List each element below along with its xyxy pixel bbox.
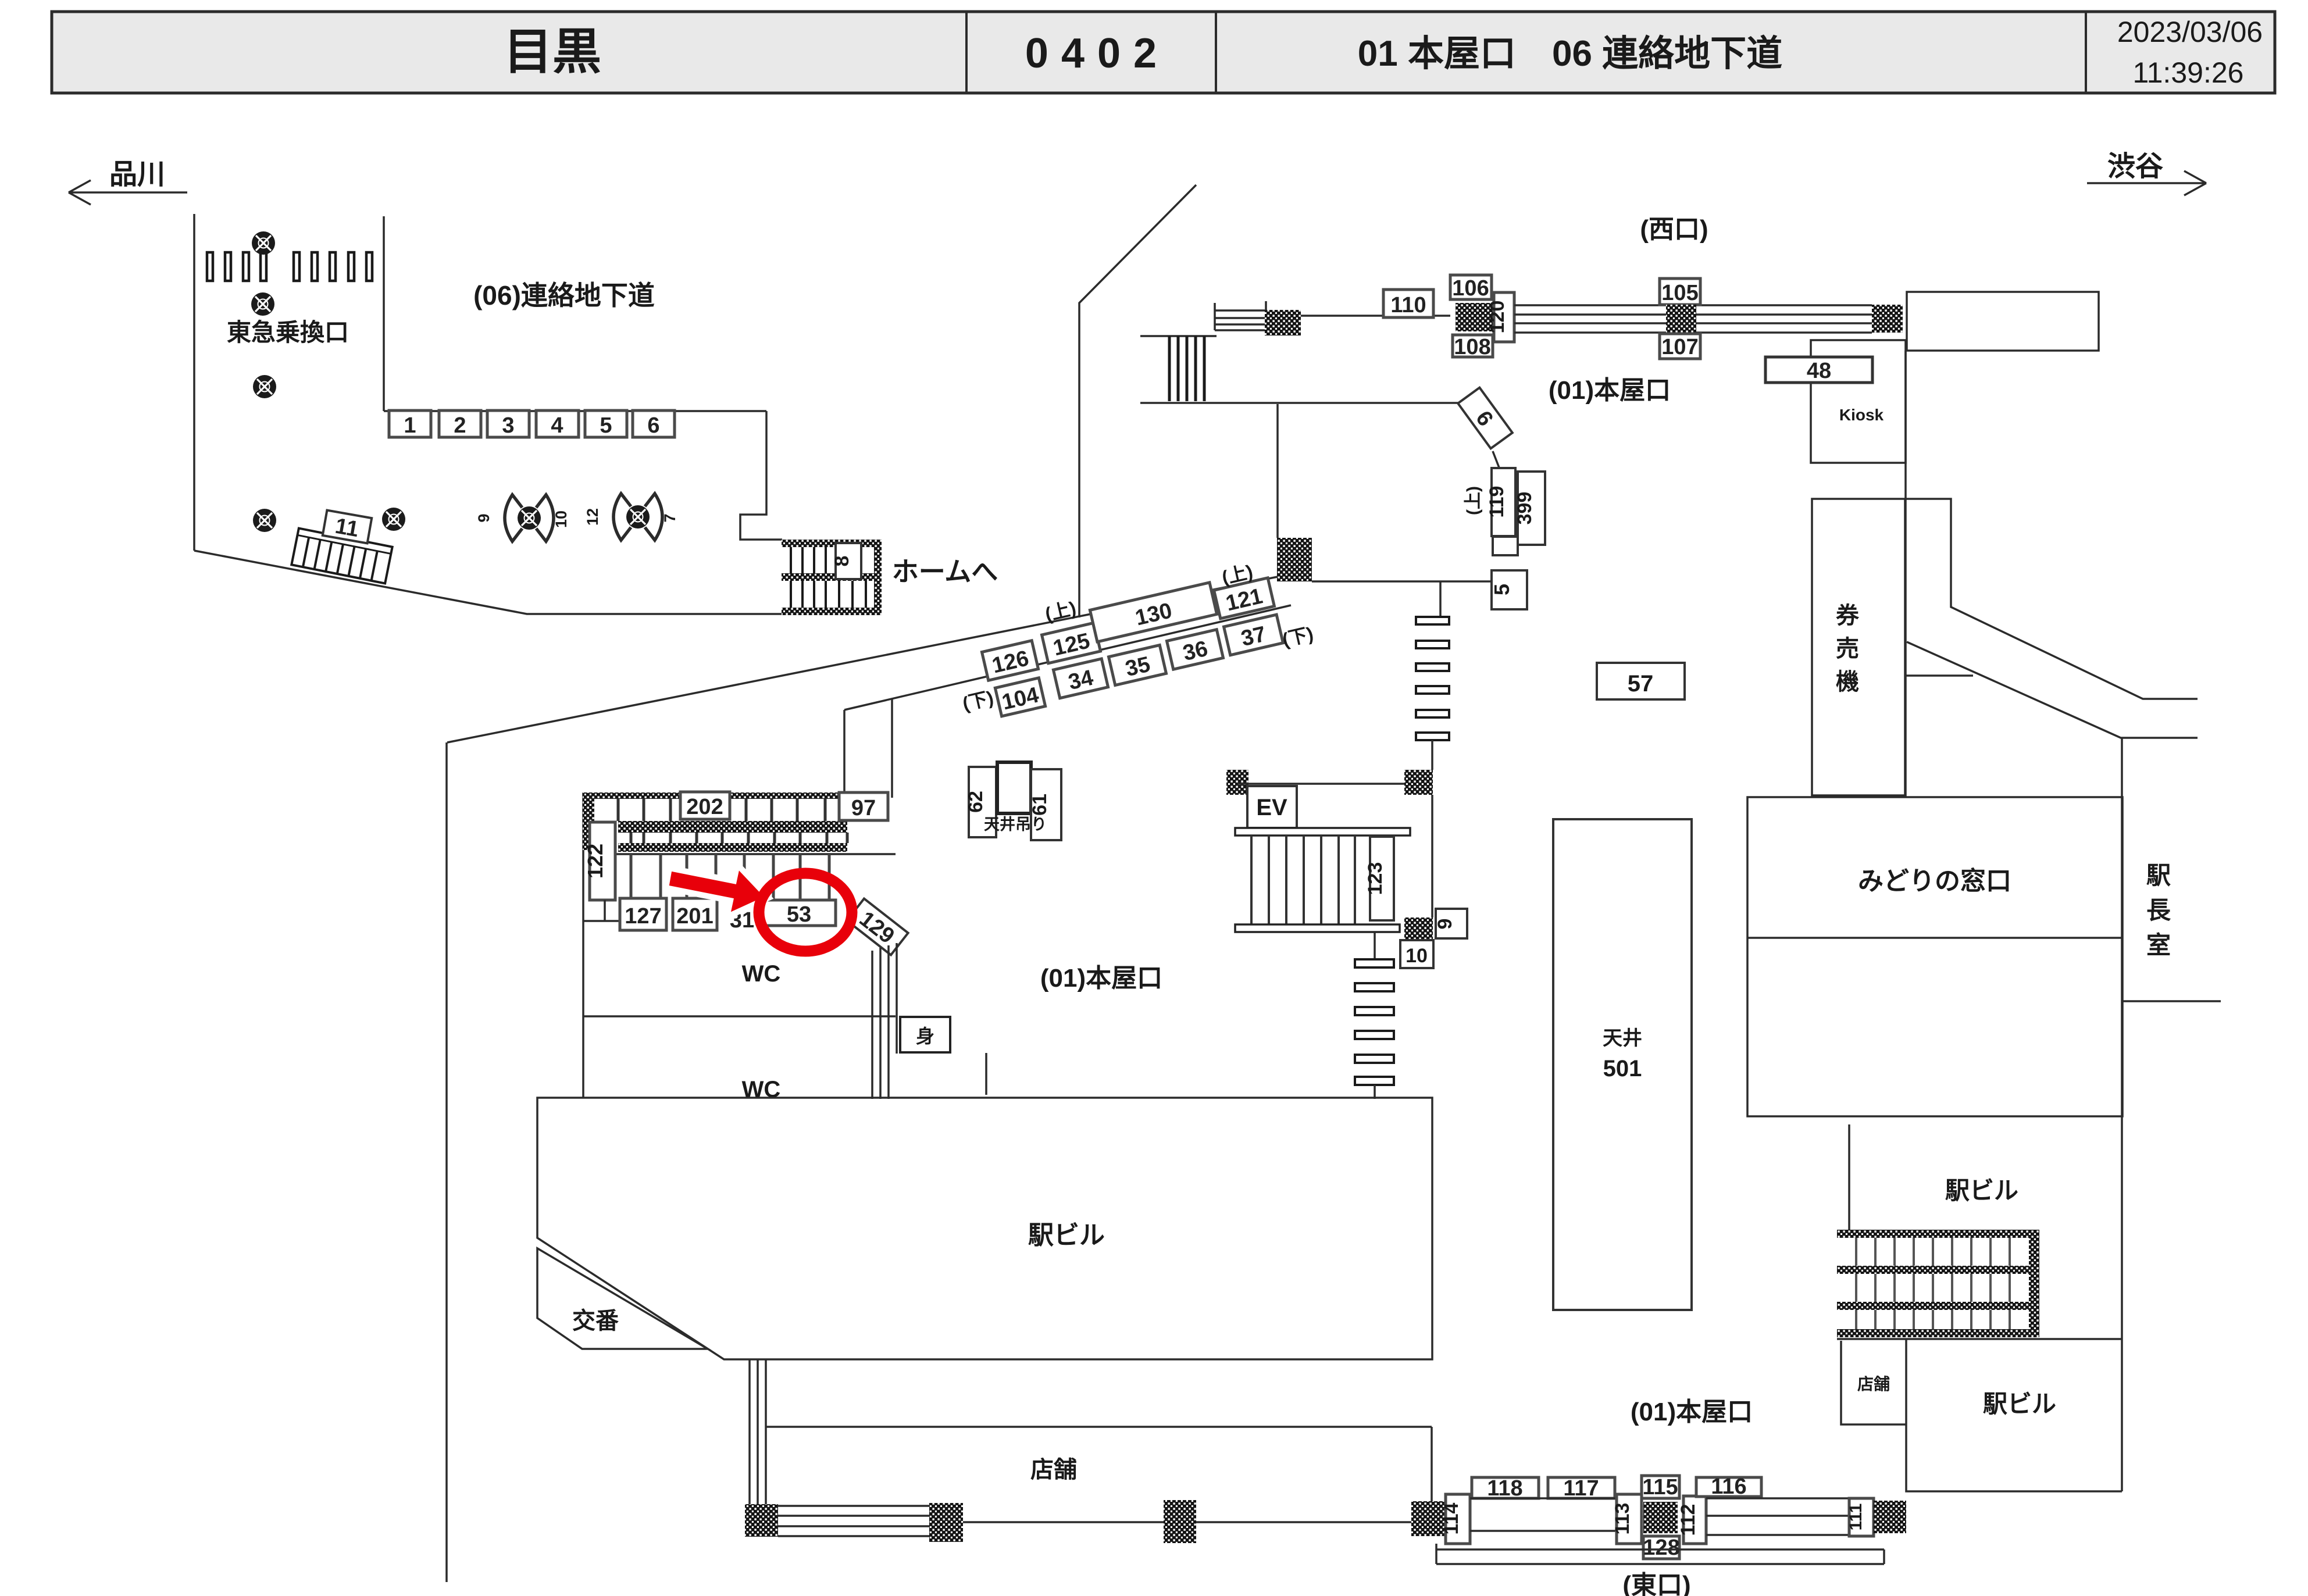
svg-text:61: 61 (1029, 794, 1051, 816)
svg-text:機: 機 (1836, 669, 1859, 695)
svg-text:券: 券 (1836, 603, 1860, 629)
svg-text:128: 128 (1643, 1536, 1679, 1560)
svg-text:WC: WC (742, 961, 781, 987)
svg-text:62: 62 (965, 791, 987, 813)
svg-text:112: 112 (1677, 1504, 1699, 1536)
svg-text:201: 201 (676, 904, 713, 929)
svg-text:ホームへ: ホームへ (892, 556, 998, 587)
svg-text:399: 399 (1514, 492, 1536, 525)
svg-text:(上): (上) (1043, 597, 1078, 624)
svg-text:天井吊り: 天井吊り (984, 816, 1047, 833)
svg-text:10: 10 (552, 510, 570, 528)
svg-text:9: 9 (1434, 919, 1456, 930)
svg-text:53: 53 (787, 902, 811, 927)
svg-text:118: 118 (1487, 1476, 1522, 1501)
svg-text:身: 身 (916, 1026, 934, 1047)
svg-text:目黒: 目黒 (504, 24, 601, 79)
svg-text:(下): (下) (961, 687, 996, 714)
svg-text:119: 119 (1486, 486, 1508, 518)
svg-text:123: 123 (1364, 862, 1386, 895)
svg-text:202: 202 (686, 795, 723, 819)
svg-text:(東口): (東口) (1622, 1571, 1690, 1596)
svg-text:113: 113 (1611, 1503, 1633, 1535)
svg-text:駅: 駅 (2146, 862, 2171, 889)
svg-text:東急乗換口: 東急乗換口 (227, 319, 349, 346)
svg-text:111: 111 (1846, 1504, 1865, 1531)
svg-text:駅ビル: 駅ビル (1983, 1390, 2056, 1418)
svg-text:(06)連絡地下道: (06)連絡地下道 (473, 280, 655, 310)
svg-text:01 本屋口 06 連絡地下道: 01 本屋口 06 連絡地下道 (1358, 34, 1782, 74)
svg-text:駅ビル: 駅ビル (1945, 1177, 2018, 1204)
svg-text:97: 97 (851, 796, 876, 820)
svg-text:10: 10 (1406, 945, 1428, 967)
svg-text:0402: 0402 (1025, 30, 1169, 77)
svg-text:Kiosk: Kiosk (1839, 406, 1884, 424)
svg-text:127: 127 (625, 904, 661, 929)
svg-text:店舗: 店舗 (1030, 1457, 1077, 1483)
svg-text:12: 12 (584, 508, 601, 526)
svg-text:105: 105 (1661, 281, 1698, 305)
svg-text:122: 122 (583, 844, 607, 879)
svg-text:11: 11 (333, 514, 361, 542)
svg-text:5: 5 (600, 413, 612, 438)
svg-text:(01)本屋口: (01)本屋口 (1549, 376, 1671, 405)
svg-text:(上): (上) (1464, 486, 1483, 515)
svg-text:48: 48 (1807, 359, 1831, 383)
svg-text:みどりの窓口: みどりの窓口 (1858, 867, 2011, 895)
svg-text:110: 110 (1390, 293, 1426, 317)
svg-text:渋谷: 渋谷 (2107, 151, 2163, 182)
svg-text:交番: 交番 (572, 1308, 619, 1334)
svg-text:107: 107 (1661, 335, 1698, 359)
svg-text:11:39:26: 11:39:26 (2133, 56, 2244, 89)
svg-text:EV: EV (1256, 795, 1287, 820)
svg-text:4: 4 (551, 413, 563, 438)
svg-text:106: 106 (1452, 276, 1489, 301)
svg-text:(01)本屋口: (01)本屋口 (1631, 1398, 1753, 1426)
svg-text:(01)本屋口: (01)本屋口 (1040, 964, 1162, 992)
svg-text:57: 57 (1628, 671, 1654, 697)
svg-text:120: 120 (1486, 301, 1508, 334)
svg-text:9: 9 (475, 513, 493, 522)
svg-text:5: 5 (1490, 584, 1514, 595)
svg-text:店舗: 店舗 (1857, 1375, 1890, 1393)
svg-text:室: 室 (2146, 931, 2171, 959)
svg-text:6: 6 (647, 413, 659, 438)
svg-text:2023/03/06: 2023/03/06 (2117, 16, 2263, 48)
svg-text:116: 116 (1711, 1474, 1746, 1499)
svg-text:115: 115 (1642, 1475, 1678, 1499)
svg-text:8: 8 (831, 556, 853, 567)
svg-text:1: 1 (404, 413, 416, 438)
svg-text:108: 108 (1454, 335, 1490, 359)
svg-text:114: 114 (1440, 1502, 1462, 1534)
svg-text:2: 2 (454, 413, 466, 438)
svg-text:長: 長 (2146, 897, 2171, 924)
svg-text:7: 7 (661, 513, 679, 522)
svg-text:117: 117 (1563, 1476, 1599, 1501)
svg-text:天井: 天井 (1603, 1027, 1642, 1049)
svg-text:(下): (下) (1280, 623, 1315, 650)
svg-text:駅ビル: 駅ビル (1028, 1221, 1105, 1249)
svg-text:品川: 品川 (109, 159, 165, 190)
svg-text:(西口): (西口) (1640, 215, 1708, 244)
svg-text:501: 501 (1603, 1056, 1642, 1081)
svg-text:3: 3 (502, 413, 514, 438)
svg-text:売: 売 (1836, 636, 1859, 662)
